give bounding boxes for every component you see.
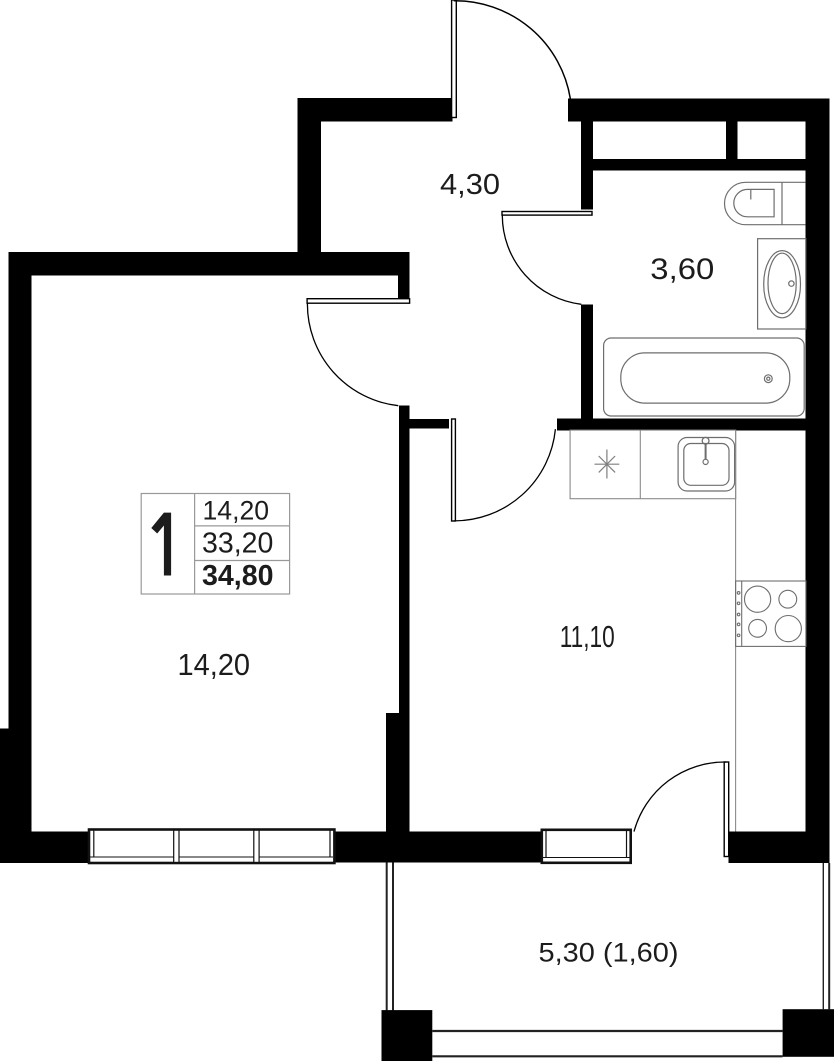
svg-text:5,30 (1,60): 5,30 (1,60) [539,938,679,968]
svg-text:34,80: 34,80 [202,560,274,592]
svg-text:4,30: 4,30 [440,169,500,201]
svg-text:14,20: 14,20 [203,496,270,526]
svg-text:33,20: 33,20 [202,528,273,560]
svg-text:11,10: 11,10 [560,620,615,654]
svg-text:14,20: 14,20 [178,647,251,682]
svg-text:3,60: 3,60 [650,253,714,286]
